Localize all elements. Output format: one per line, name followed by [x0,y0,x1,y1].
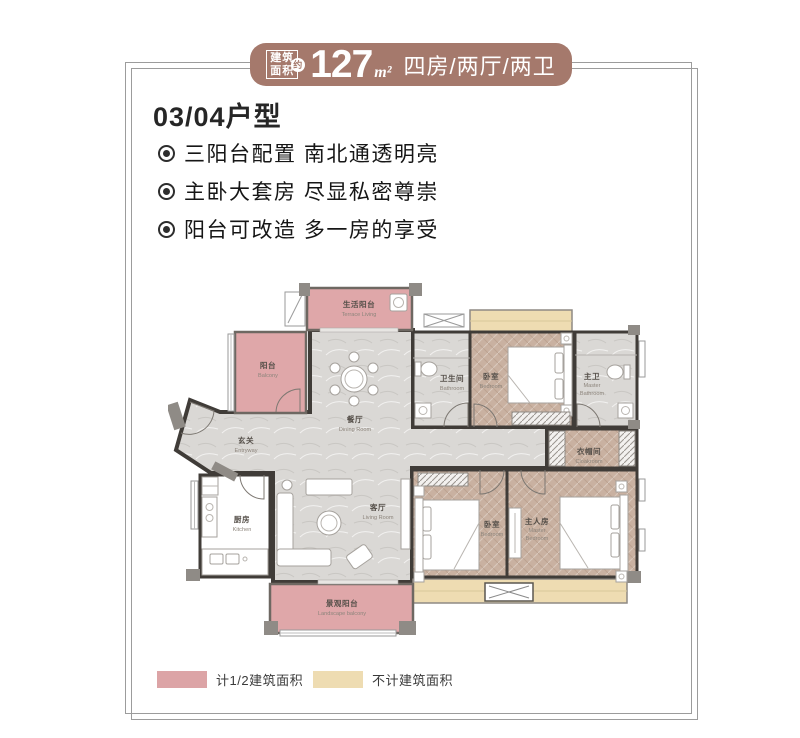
label-master-bedroom-en1: Master [528,528,545,534]
label-entry-en: Entryway [234,448,257,454]
label-dining-en: Dining Room [339,427,372,433]
area-badge: 建筑 面积 约 127 m² 四房/两厅/两卫 [250,43,572,86]
flyer-page: 建筑 面积 约 127 m² 四房/两厅/两卫 03/04户型 三阳台配置 南北… [0,0,800,738]
bullet-icon [158,221,175,238]
feature-item: 阳台可改造 多一房的享受 [158,217,439,241]
label-terrace-en: Terrace Living [342,312,377,318]
area-value: 127 [310,45,372,84]
label-dining-cn: 餐厅 [346,414,363,424]
label-balcony-cn: 阳台 [260,360,276,370]
feature-item: 主卧大套房 尽显私密尊崇 [158,179,439,203]
label-master-bath-en2: Bathroom [580,391,605,397]
area-unit: m² [374,65,391,81]
floor-plan: 生活阳台 Terrace Living 阳台 Balcony 餐厅 Dining… [168,283,673,643]
label-terrace-cn: 生活阳台 [343,299,375,309]
label-bedroom-south-cn: 卧室 [484,519,500,529]
window-box-south [485,583,533,601]
bay-window-north [470,310,572,332]
legend-half-area: 计1/2建筑面积 [157,670,303,689]
label-living-en: Living Room [362,515,393,521]
label-landscape-cn: 景观阳台 [326,598,358,608]
approx-circle-icon: 约 [291,58,305,72]
label-balcony-en: Balcony [258,373,278,379]
label-master-bath-en1: Master [583,383,600,389]
legend-half-area-swatch [157,671,207,688]
feature-list: 三阳台配置 南北通透明亮 主卧大套房 尽显私密尊崇 阳台可改造 多一房的享受 [158,141,439,255]
unit-title: 03/04户型 [153,95,282,134]
opening-terrace [320,328,398,332]
label-master-bath-cn: 主卫 [584,371,600,381]
legend-excluded-swatch [313,671,363,688]
legend-half-area-label: 计1/2建筑面积 [216,670,303,689]
terrace-washer [390,294,407,311]
label-bedroom-north-en: Bedroom [480,384,503,390]
label-bathroom-cn: 卫生间 [440,373,464,383]
label-cloakroom-cn: 衣帽间 [577,446,601,456]
layout-spec: 四房/两厅/两卫 [404,49,556,81]
label-master-bedroom-en2: Bedroom [526,536,549,542]
area-badge-prefix: 建筑 面积 约 [266,50,298,79]
feature-text: 阳台可改造 多一房的享受 [184,214,439,244]
label-kitchen-en: Kitchen [233,527,252,533]
room-landscape-balcony-floor [270,584,413,633]
label-kitchen-cn: 厨房 [234,514,250,524]
label-master-bedroom-cn: 主人房 [525,516,549,526]
label-landscape-en: Landscape balcony [318,611,366,617]
label-entry-cn: 玄关 [238,435,254,445]
label-living-cn: 客厅 [370,502,386,512]
feature-item: 三阳台配置 南北通透明亮 [158,141,439,165]
bullet-icon [158,183,175,200]
label-bedroom-south-en: Bedroom [481,532,504,538]
label-bathroom-en: Bathroom [440,386,465,392]
label-bedroom-north-cn: 卧室 [483,371,499,381]
kitchen-fixtures [202,477,268,575]
legend-excluded: 不计建筑面积 [313,670,453,689]
feature-text: 三阳台配置 南北通透明亮 [184,138,439,168]
label-cloakroom-en: Cloakroom [575,459,602,465]
bullet-icon [158,145,175,162]
feature-text: 主卧大套房 尽显私密尊崇 [184,176,439,206]
opening-landscape [318,580,398,584]
legend-excluded-label: 不计建筑面积 [372,670,453,689]
